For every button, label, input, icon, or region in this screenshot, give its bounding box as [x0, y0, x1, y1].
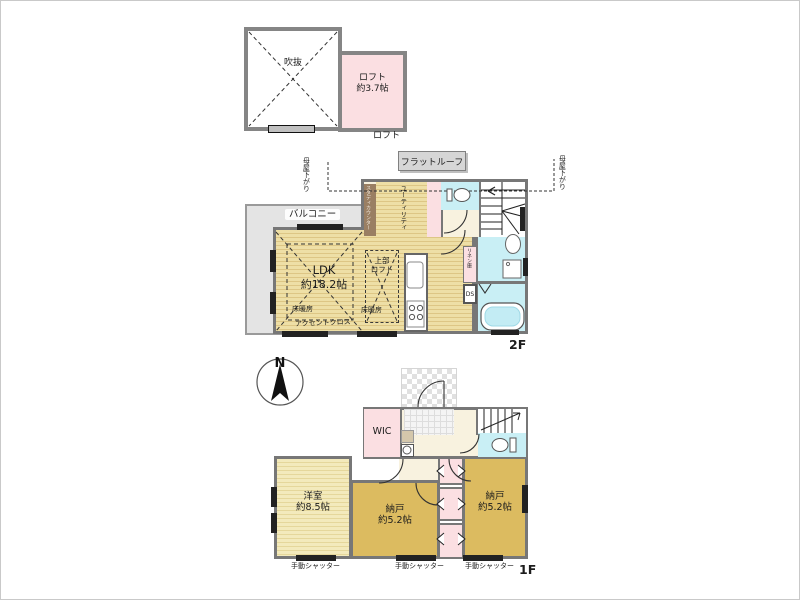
linen-label: リネン庫: [466, 248, 472, 282]
flat-roof-strip: [427, 182, 441, 237]
f2-toilet-room: [441, 182, 479, 210]
floor-plan-canvas: 吹抜 ロフト約3.7帖 ロフト 母屋下がり 母屋下がり フラットルーフ バルコニ…: [0, 0, 800, 600]
flat-roof-label: フラットルーフ: [398, 151, 466, 171]
western-room-size: 約8.5帖: [296, 502, 330, 513]
western-room-name: 洋室: [303, 491, 322, 502]
western-room-label: 洋室約8.5帖: [276, 491, 350, 514]
loft-void-room: [244, 27, 342, 131]
compass: N: [257, 356, 303, 405]
bath-partition-wall: [478, 281, 525, 284]
storage-mid-label: 納戸約5.2帖: [353, 504, 437, 527]
western-window-bottom: [296, 555, 336, 561]
ldk-window-left-2: [270, 292, 276, 314]
upper-loft-line1: 上部: [375, 256, 390, 265]
shoe-cabinet: [401, 430, 414, 443]
balcony-label: バルコニー: [285, 209, 340, 220]
shutter-label-3: 手動シャッター: [465, 562, 513, 570]
void-label: 吹抜: [263, 58, 323, 69]
f2-floor-label: 2F: [509, 337, 526, 352]
f1-toilet-room: [478, 433, 526, 457]
floor-heating-label-a: 床暖房: [292, 305, 313, 313]
loft-room-name: ロフト: [359, 73, 386, 83]
ldk-window-left-1: [270, 250, 276, 272]
closet-3: [438, 523, 464, 559]
wic-label: WIC: [364, 426, 400, 437]
storage-right-name: 納戸: [485, 491, 504, 502]
bathroom-window: [491, 330, 519, 335]
ldk-name: LDK: [313, 263, 336, 277]
moya-sagari-left-label: 母屋下がり: [302, 157, 310, 203]
storage-right-size: 約5.2帖: [478, 502, 512, 513]
moya-sagari-right-label: 母屋下がり: [558, 155, 566, 201]
ldk-size: 約18.2帖: [301, 278, 348, 291]
washroom-window: [523, 258, 528, 276]
duct-space: DS: [463, 284, 477, 304]
ldk-window-bottom-2: [357, 331, 397, 337]
study-counter-label: スタディカウンター: [365, 185, 371, 235]
compass-n: N: [275, 356, 286, 371]
loft-floor-label: ロフト: [373, 131, 400, 142]
ldk-window-top: [297, 224, 343, 230]
closet-2: [438, 487, 464, 521]
storage-mid-window-bottom: [396, 555, 436, 561]
storage-mid-size: 約5.2帖: [378, 515, 412, 526]
western-window-left-2: [271, 513, 277, 533]
upper-loft-label: 上部ロフト: [365, 256, 399, 274]
storage-right-label: 納戸約5.2帖: [464, 491, 526, 514]
storage-mid-name: 納戸: [385, 504, 404, 515]
storage-right-window-bottom: [463, 555, 503, 561]
f2-stairs: [479, 182, 525, 237]
f1-floor-label: 1F: [519, 562, 536, 577]
ldk-label: LDK約18.2帖: [284, 264, 364, 292]
kitchen-counter: [404, 253, 428, 332]
f2-stairs-window: [520, 207, 525, 231]
loft-window: [268, 125, 315, 133]
loft-room-size: 約3.7帖: [356, 84, 388, 94]
floor-heating-label-b: 床暖房: [361, 306, 382, 314]
porch: [401, 368, 457, 408]
loft-room-label: ロフト約3.7帖: [341, 73, 404, 95]
upper-loft-line2: ロフト: [371, 265, 394, 274]
closet-1: [438, 457, 464, 485]
shutter-label-1: 手動シャッター: [291, 562, 339, 570]
f1-stairs: [476, 409, 526, 435]
shutter-label-2: 手動シャッター: [395, 562, 443, 570]
utility-label: ユーティリティ: [398, 185, 406, 235]
ldk-window-bottom-1: [282, 331, 328, 337]
f1-washbasin: [401, 444, 414, 457]
f2-hall-room: [441, 210, 479, 237]
